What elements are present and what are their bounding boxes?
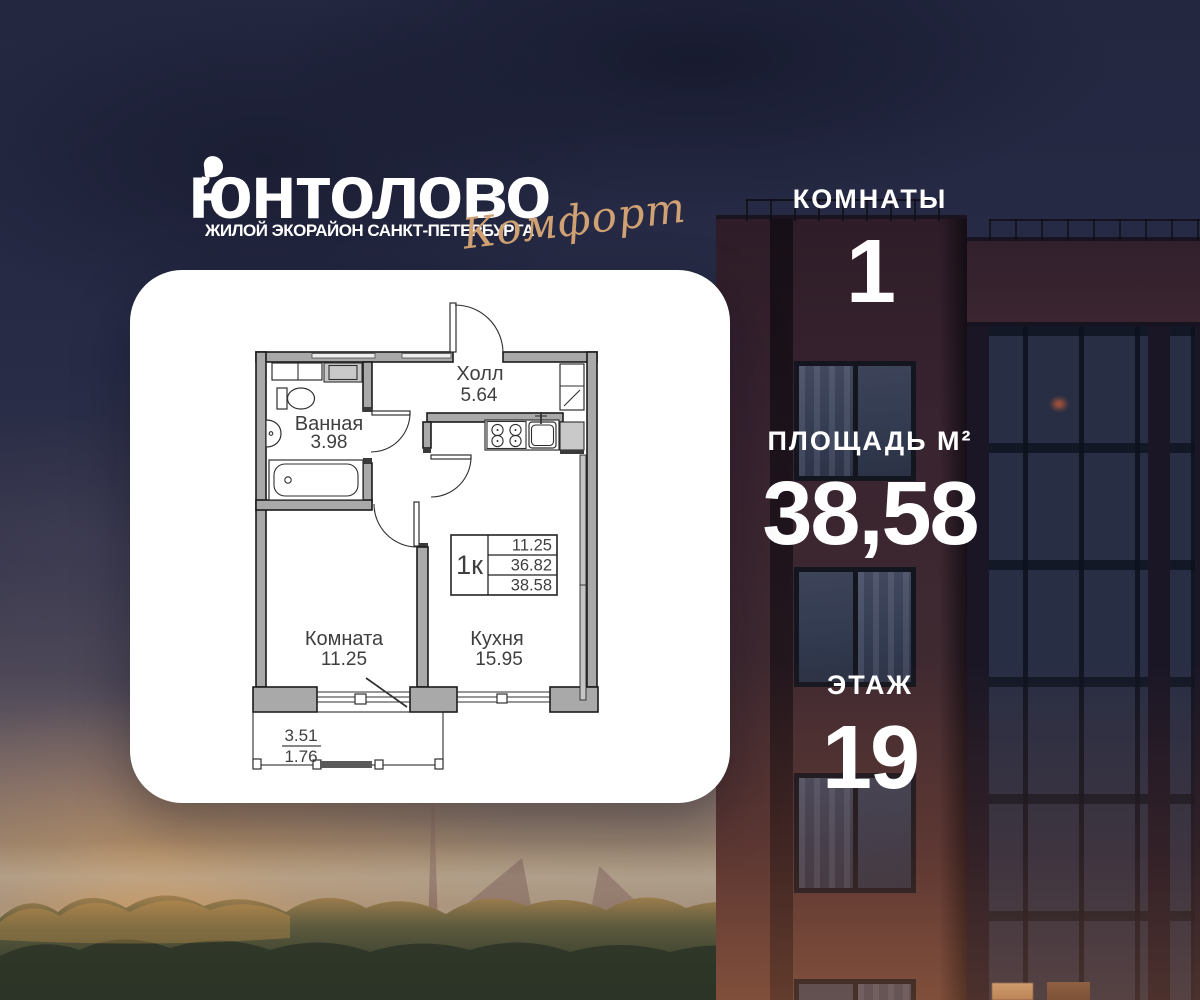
lit-window (992, 983, 1033, 1000)
hall-label: Холл (456, 363, 503, 385)
stat-floor-value: 19 (740, 713, 1000, 803)
stat-area-label: ПЛОЩАДЬ М² (740, 428, 1000, 455)
brick-parapet-band (967, 241, 1200, 326)
stat-floor: ЭТАЖ 19 (740, 672, 1000, 803)
stat-rooms: КОМНАТЫ 1 (740, 186, 1000, 317)
stat-rooms-label: КОМНАТЫ (740, 186, 1000, 213)
room-area: 11.25 (321, 649, 367, 670)
hall-area: 5.64 (461, 385, 498, 406)
stat-rooms-value: 1 (740, 227, 1000, 317)
floorplan-drawing: 1к 11.25 36.82 38.58 Холл 5.64 Ванная 3.… (130, 270, 730, 803)
stat-area-value: 38,58 (740, 469, 1000, 559)
doors (371, 303, 503, 547)
floorplan-card: 1к 11.25 36.82 38.58 Холл 5.64 Ванная 3.… (130, 270, 730, 803)
lit-window (1047, 982, 1090, 1000)
building-window (794, 979, 916, 1000)
building-glass-tower (967, 237, 1200, 1000)
kitchen-label: Кухня (470, 628, 524, 650)
balcony (253, 712, 443, 769)
table-total-area: 38.58 (511, 577, 552, 595)
room-label: Комната (305, 628, 384, 650)
room-labels: Холл 5.64 Ванная 3.98 Комната 11.25 Кухн… (295, 363, 524, 670)
stat-area: ПЛОЩАДЬ М² 38,58 (740, 428, 1000, 559)
table-area-no-balcony: 36.82 (511, 557, 552, 575)
building-window (794, 567, 916, 687)
kitchen-area: 15.95 (475, 649, 523, 670)
tower-shadow-edge (939, 219, 967, 1000)
bathroom-area: 3.98 (311, 432, 348, 453)
balcony-area-reduced: 1.76 (284, 747, 317, 766)
table-living-area: 11.25 (512, 537, 552, 555)
dark-brick-strip (770, 219, 793, 1000)
lit-window-lamp (1049, 396, 1069, 412)
balcony-dimension: 3.51 1.76 (282, 726, 321, 766)
facade-pier (1195, 326, 1200, 1000)
flat-type-label: 1к (456, 550, 483, 580)
facade-pier (1148, 326, 1170, 1000)
treeline (0, 878, 780, 1000)
summary-table: 1к 11.25 36.82 38.58 (451, 535, 557, 595)
promo-banner: юнтолово ЖИЛОЙ ЭКОРАЙОН САНКТ-ПЕТЕРБУРГА… (0, 0, 1200, 1000)
building-brick-tower (716, 215, 967, 1000)
stat-floor-label: ЭТАЖ (740, 672, 1000, 699)
roof-railing (989, 219, 1200, 243)
balcony-area-total: 3.51 (284, 726, 317, 745)
